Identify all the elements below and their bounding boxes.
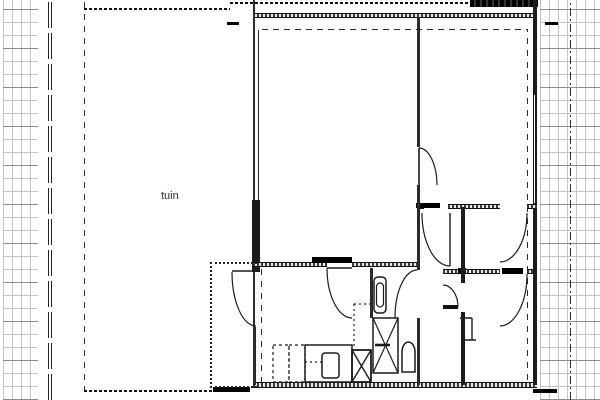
- door-arc-hall-west: [422, 213, 450, 266]
- toilet: [402, 342, 415, 372]
- door-arc-hall-east: [500, 213, 527, 262]
- symbols-layer: [0, 0, 600, 400]
- door-arc-bedroom-north: [419, 148, 437, 185]
- door-arc-kitchen: [327, 268, 352, 318]
- duct-dotted-marks: [354, 304, 370, 346]
- door-arc-bathroom: [395, 270, 417, 318]
- appliance-space-b: [289, 345, 305, 382]
- duct-shaft-cross: [352, 350, 371, 382]
- door-arc-garden: [232, 272, 256, 326]
- kitchen-unit: [305, 345, 352, 382]
- door-arc-bedroom-south: [500, 274, 527, 326]
- appliance-space-a: [273, 345, 289, 382]
- wall-jog: [460, 318, 476, 340]
- door-arc-corridor: [443, 285, 458, 307]
- kitchen-sink: [322, 353, 339, 378]
- door-leaf-corridor: [443, 305, 458, 309]
- floor-plan: tuin: [0, 0, 600, 400]
- washbasin-bowl: [377, 283, 384, 307]
